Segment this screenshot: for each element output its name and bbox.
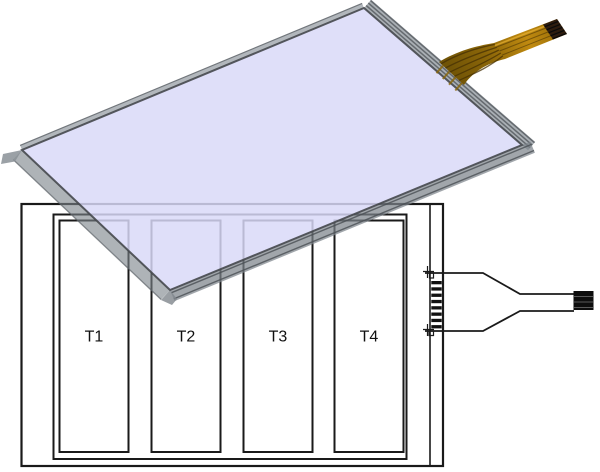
contact-pin [431, 306, 441, 309]
contact-pin [431, 281, 441, 284]
contact-pin [431, 325, 441, 328]
touch-panel-overlay [1, 0, 535, 305]
panel-face [22, 8, 522, 290]
contact-pin [431, 287, 441, 290]
diagram-canvas: T1 T2 T3 T4 [0, 0, 600, 472]
zone-label-t1: T1 [85, 329, 104, 346]
zone-label-t4: T4 [360, 329, 379, 346]
tail-trace-top [425, 273, 574, 294]
contact-pin [431, 313, 441, 316]
pin-mark-top [423, 266, 434, 278]
contact-pin [431, 300, 441, 303]
contact-ladder [431, 281, 441, 328]
contact-pin [431, 319, 441, 322]
zone-label-t2: T2 [177, 329, 196, 346]
tail-trace-bottom [425, 311, 574, 331]
zone-label-t3: T3 [269, 329, 288, 346]
contact-pin [431, 294, 441, 297]
touch-panel-assembly-figure: T1 T2 T3 T4 [0, 0, 600, 472]
